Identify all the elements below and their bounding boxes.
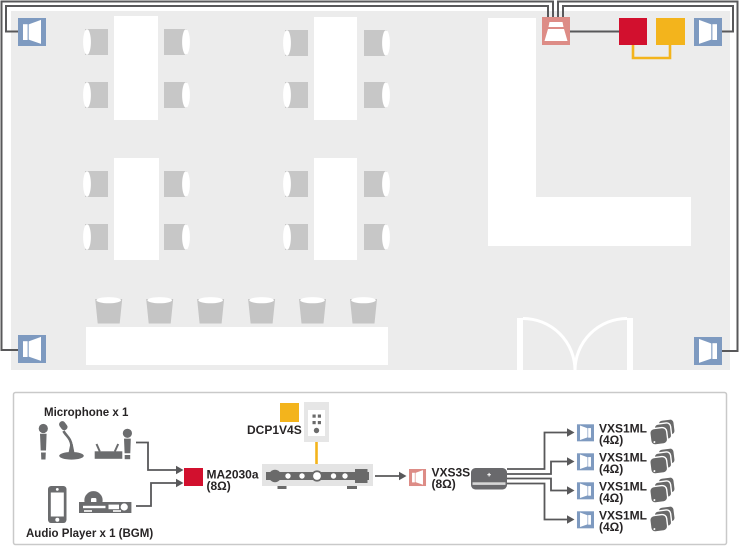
svg-text:(4Ω): (4Ω) [599,462,623,476]
svg-text:(4Ω): (4Ω) [599,491,623,505]
svg-text:DCP1V4S: DCP1V4S [247,423,302,437]
svg-text:(8Ω): (8Ω) [432,477,456,491]
svg-text:(4Ω): (4Ω) [599,520,623,534]
svg-text:Microphone x 1: Microphone x 1 [44,407,129,419]
svg-text:(8Ω): (8Ω) [207,479,231,493]
svg-text:Audio Player x 1 (BGM): Audio Player x 1 (BGM) [26,528,153,540]
svg-text:(4Ω): (4Ω) [599,433,623,447]
